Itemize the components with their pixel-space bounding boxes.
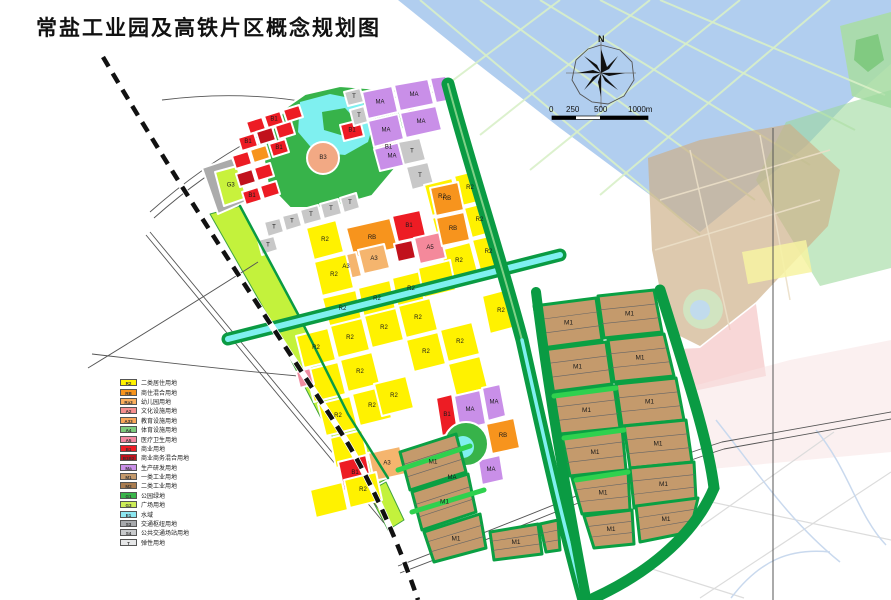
legend-item-S3: S3交通枢纽用地 bbox=[120, 519, 189, 528]
legend-item-RB: RB商住混合用地 bbox=[120, 387, 189, 396]
zone-label-R2: R2 bbox=[339, 306, 347, 312]
zone-label-MA: MA bbox=[410, 92, 419, 98]
legend-item-R2: R2二类居住用地 bbox=[120, 378, 189, 387]
compass-north-label: N bbox=[598, 34, 605, 44]
zone-label-T: T bbox=[272, 224, 276, 230]
context-shape bbox=[648, 124, 840, 346]
outside-road bbox=[88, 262, 258, 368]
zone-label-A3: A3 bbox=[370, 256, 378, 262]
zone-label-MA: MA bbox=[417, 119, 426, 125]
zone bbox=[310, 482, 348, 518]
zone-label-M1: M1 bbox=[451, 536, 460, 543]
zone-label-R2: R2 bbox=[368, 403, 376, 409]
legend-item-E1: E1水域 bbox=[120, 509, 189, 518]
zone-label-M1: M1 bbox=[661, 516, 670, 523]
zone-label-R2: R2 bbox=[456, 339, 464, 345]
zone-label-B1: B1 bbox=[348, 128, 356, 134]
zone-label-R2: R2 bbox=[476, 217, 484, 223]
legend-item-T: T弹性用地 bbox=[120, 538, 189, 547]
zone-label-R2: R2 bbox=[346, 335, 354, 341]
zone-label-RB: RB bbox=[443, 196, 451, 202]
zone-label-B1: B1 bbox=[405, 223, 413, 229]
legend-swatch-M2: M2 bbox=[120, 482, 137, 489]
zone-label-M1: M1 bbox=[606, 526, 615, 533]
zone-label-M1: M1 bbox=[590, 449, 599, 456]
zone-label-MA: MA bbox=[448, 475, 457, 481]
zone-label-A3: A3 bbox=[383, 461, 391, 467]
zone-label-T: T bbox=[352, 94, 356, 100]
zone-label-B1: B1 bbox=[270, 117, 278, 123]
zone-label-M1: M1 bbox=[635, 355, 644, 362]
scale-bar-segment bbox=[600, 116, 648, 120]
zone-label-M1: M1 bbox=[582, 407, 591, 414]
zone-label-A5: A5 bbox=[426, 245, 434, 251]
legend-item-M2: M2二类工业用地 bbox=[120, 481, 189, 490]
legend-item-Ra3: Ra3幼儿园用地 bbox=[120, 397, 189, 406]
legend-item-A2: A2文化设施用地 bbox=[120, 406, 189, 415]
legend-item-Ma: Ma生产研发用地 bbox=[120, 463, 189, 472]
zone-label-R2: R2 bbox=[373, 296, 381, 302]
zone-label-R2: R2 bbox=[407, 286, 415, 292]
legend-swatch-Ra3: Ra3 bbox=[120, 398, 137, 405]
context-shape bbox=[700, 472, 891, 598]
zone-label-MA: MA bbox=[376, 99, 385, 105]
legend-label: 教育设施用地 bbox=[141, 416, 177, 425]
legend-label: 商住混合用地 bbox=[141, 388, 177, 397]
zone-label-G3: G3 bbox=[227, 183, 236, 189]
legend-swatch-Ma: Ma bbox=[120, 464, 137, 471]
zone-label-T: T bbox=[290, 218, 294, 224]
zone-label-T: T bbox=[329, 206, 333, 212]
legend-item-A4: A4体育设施用地 bbox=[120, 425, 189, 434]
legend-swatch-T: T bbox=[120, 539, 137, 546]
zone-label-R2: R2 bbox=[312, 345, 320, 351]
legend-swatch-B1B2: B1B2 bbox=[120, 454, 137, 461]
legend-label: 一类工业用地 bbox=[141, 472, 177, 481]
zone-label-T: T bbox=[309, 212, 313, 218]
legend-label: 幼儿园用地 bbox=[141, 397, 171, 406]
zone-label-RB: RB bbox=[449, 226, 457, 232]
zone-label-T: T bbox=[410, 148, 414, 154]
legend-swatch-A4: A4 bbox=[120, 426, 137, 433]
legend-item-B1B2: B1B2商业商务混合用地 bbox=[120, 453, 189, 462]
legend-swatch-G3: G3 bbox=[120, 501, 137, 508]
legend-item-M1: M1一类工业用地 bbox=[120, 472, 189, 481]
zone-label-M1: M1 bbox=[659, 481, 668, 488]
legend-swatch-A2: A2 bbox=[120, 407, 137, 414]
legend-swatch-RB: RB bbox=[120, 389, 137, 396]
legend-item-A5: A5医疗卫生用地 bbox=[120, 434, 189, 443]
legend-item-B1: B1商业用地 bbox=[120, 444, 189, 453]
zone-label-R2: R2 bbox=[466, 185, 474, 191]
zone-label-RB: RB bbox=[499, 433, 507, 439]
scale-label-0: 0 bbox=[549, 105, 554, 114]
zone-label-R2: R2 bbox=[497, 308, 505, 314]
legend-swatch-B1: B1 bbox=[120, 445, 137, 452]
scale-label-1000m: 1000m bbox=[628, 105, 653, 114]
zone-label-M1: M1 bbox=[440, 499, 449, 506]
zone-label-B1: B1 bbox=[385, 145, 393, 151]
zone-label-M1: M1 bbox=[598, 490, 607, 497]
legend-swatch-M1: M1 bbox=[120, 473, 137, 480]
zone-label-R2: R2 bbox=[334, 413, 342, 419]
legend-label: 水域 bbox=[141, 510, 153, 519]
zone-label-MA: MA bbox=[466, 407, 475, 413]
outside-road bbox=[92, 354, 298, 376]
zone-label-R2: R2 bbox=[356, 369, 364, 375]
zone-label-A3: A3 bbox=[342, 264, 350, 270]
legend-swatch-S3: S3 bbox=[120, 520, 137, 527]
zone-label-R2: R2 bbox=[455, 258, 463, 264]
context-shape bbox=[690, 300, 710, 320]
legend-label: 交通枢纽用地 bbox=[141, 519, 177, 528]
zone-label-B1: B1 bbox=[244, 139, 252, 145]
zone-label-R2: R2 bbox=[390, 393, 398, 399]
legend-label: 公共交通场站用地 bbox=[141, 528, 189, 537]
scale-label-250: 250 bbox=[566, 105, 580, 114]
legend-swatch-A5: A5 bbox=[120, 436, 137, 443]
scale-bar-segment bbox=[552, 116, 576, 120]
zone-label-T: T bbox=[348, 200, 352, 206]
zone-label-R2: R2 bbox=[380, 325, 388, 331]
zone-label-MA: MA bbox=[382, 127, 391, 133]
context-shape bbox=[731, 551, 830, 598]
zone-label-B1: B1 bbox=[351, 470, 359, 476]
legend-swatch-A33: A33 bbox=[120, 417, 137, 424]
legend-label: 广场用地 bbox=[141, 500, 165, 509]
zone-label-R2: R2 bbox=[485, 249, 493, 255]
zone-label-R2: R2 bbox=[321, 237, 329, 243]
legend-swatch-E1: E1 bbox=[120, 511, 137, 518]
legend-label: 医疗卫生用地 bbox=[141, 435, 177, 444]
zone-label-T: T bbox=[357, 113, 361, 119]
zone-label-RB: RB bbox=[368, 235, 376, 241]
zone-label-B1: B1 bbox=[443, 412, 451, 418]
zone-label-M1: M1 bbox=[625, 311, 634, 318]
legend-label: 生产研发用地 bbox=[141, 463, 177, 472]
zone-label-MA: MA bbox=[490, 399, 499, 405]
zone-label-B1: B1 bbox=[275, 145, 283, 151]
legend-item-A33: A33教育设施用地 bbox=[120, 416, 189, 425]
legend-swatch-S4: S4 bbox=[120, 529, 137, 536]
zone-label-B1: B1 bbox=[248, 193, 256, 199]
zone-label-MA: MA bbox=[388, 153, 397, 159]
zone-label-M1: M1 bbox=[653, 441, 662, 448]
zone-label-R2: R2 bbox=[330, 272, 338, 278]
legend: R2二类居住用地RB商住混合用地Ra3幼儿园用地A2文化设施用地A33教育设施用… bbox=[120, 378, 189, 547]
legend-label: 文化设施用地 bbox=[141, 406, 177, 415]
planning-map-page: G3B1B1B1B1B1B1MAMAMAMAMATTTTTTTTTTB3R2R2… bbox=[0, 0, 891, 600]
legend-item-G1: G1公园绿地 bbox=[120, 491, 189, 500]
zone-label-R2: R2 bbox=[359, 487, 367, 493]
zone-label-T: T bbox=[418, 173, 422, 179]
zone bbox=[394, 240, 416, 262]
zone-label-R2: R2 bbox=[422, 349, 430, 355]
legend-label: 弹性用地 bbox=[141, 538, 165, 547]
zone-label-B3: B3 bbox=[319, 155, 327, 161]
zone-label-R2: R2 bbox=[414, 315, 422, 321]
legend-label: 二类工业用地 bbox=[141, 481, 177, 490]
legend-label: 体育设施用地 bbox=[141, 425, 177, 434]
zone-label-M1: M1 bbox=[564, 320, 573, 327]
legend-item-G3: G3广场用地 bbox=[120, 500, 189, 509]
legend-label: 商业商务混合用地 bbox=[141, 453, 189, 462]
legend-label: 二类居住用地 bbox=[141, 378, 177, 387]
legend-label: 公园绿地 bbox=[141, 491, 165, 500]
zone-label-M1: M1 bbox=[645, 399, 654, 406]
legend-swatch-G1: G1 bbox=[120, 492, 137, 499]
legend-label: 商业用地 bbox=[141, 444, 165, 453]
scale-label-500: 500 bbox=[594, 105, 608, 114]
legend-swatch-R2: R2 bbox=[120, 379, 137, 386]
zone-label-T: T bbox=[266, 242, 270, 248]
zone-label-M1: M1 bbox=[428, 459, 437, 466]
zone-label-MA: MA bbox=[487, 467, 496, 473]
zone-label-M1: M1 bbox=[511, 539, 520, 546]
zone-label-M1: M1 bbox=[573, 364, 582, 371]
legend-item-S4: S4公共交通场站用地 bbox=[120, 528, 189, 537]
map-title: 常盐工业园及高铁片区概念规划图 bbox=[36, 12, 381, 42]
